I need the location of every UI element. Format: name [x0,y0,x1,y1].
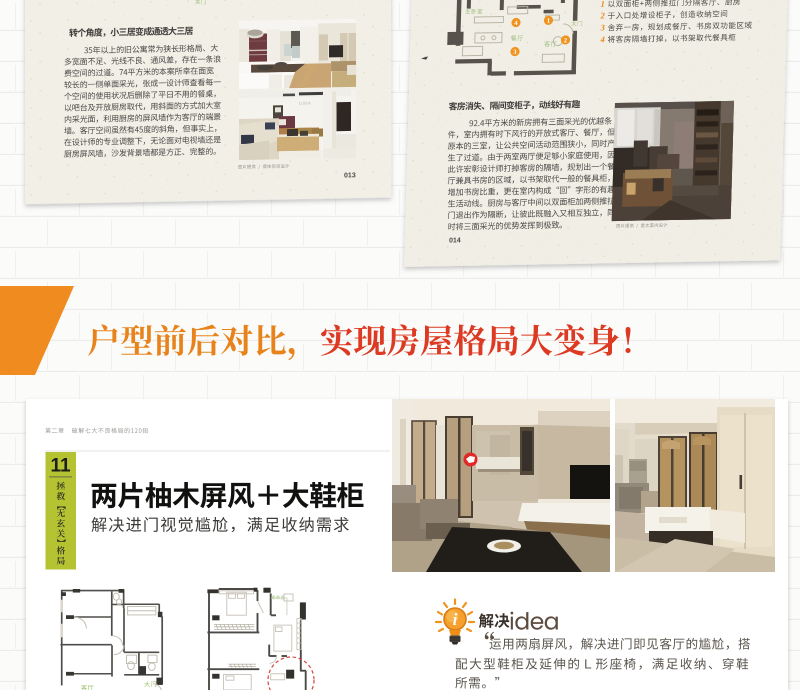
svg-text:013: 013 [344,172,356,179]
svg-text:1: 1 [547,18,550,25]
svg-text:1: 1 [600,0,605,9]
svg-text:11: 11 [50,456,71,477]
svg-text:4: 4 [599,34,605,44]
svg-text:i: i [453,610,458,629]
svg-text:014: 014 [449,237,461,244]
svg-text:UMA: UMA [299,101,312,106]
